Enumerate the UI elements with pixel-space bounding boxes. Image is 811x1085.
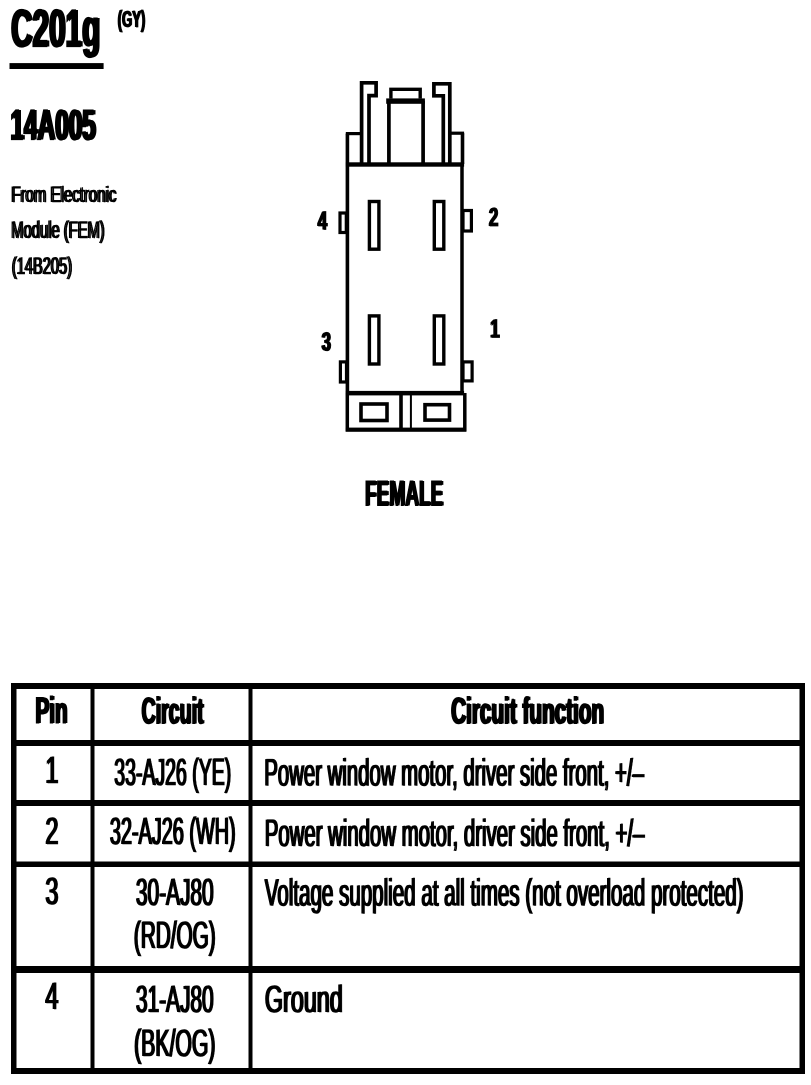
svg-text:Ground: Ground (266, 977, 344, 1020)
svg-text:31-AJ80: 31-AJ80 (136, 979, 214, 1021)
svg-text:Circuit function: Circuit function (450, 691, 603, 732)
svg-text:14A005: 14A005 (10, 101, 95, 149)
svg-text:4: 4 (318, 206, 328, 236)
svg-text:Power window motor, driver sid: Power window motor, driver side front, +… (265, 752, 645, 794)
svg-text:33-AJ26 (YE): 33-AJ26 (YE) (115, 752, 232, 794)
svg-text:1: 1 (46, 748, 59, 791)
svg-text:FEMALE: FEMALE (365, 473, 443, 513)
svg-text:C201g: C201g (10, 0, 99, 59)
svg-text:4: 4 (46, 974, 59, 1017)
svg-text:(14B205): (14B205) (13, 253, 73, 280)
svg-text:2: 2 (46, 809, 59, 852)
svg-text:2: 2 (489, 202, 498, 232)
svg-text:3: 3 (46, 869, 59, 912)
svg-text:Power window motor, driver sid: Power window motor, driver side front, +… (265, 812, 645, 854)
svg-text:(BK/OG): (BK/OG) (135, 1021, 216, 1064)
svg-text:Pin: Pin (35, 691, 67, 732)
svg-text:From Electronic: From Electronic (12, 183, 117, 208)
svg-text:3: 3 (322, 327, 331, 357)
svg-text:1: 1 (491, 314, 500, 344)
svg-text:32-AJ26 (WH): 32-AJ26 (WH) (110, 811, 236, 852)
svg-text:30-AJ80: 30-AJ80 (136, 872, 214, 914)
svg-text:(GY): (GY) (118, 6, 146, 32)
svg-text:Voltage supplied at all times: Voltage supplied at all times (not overl… (265, 872, 744, 914)
svg-text:Module (FEM): Module (FEM) (12, 218, 105, 245)
svg-text:Circuit: Circuit (141, 691, 203, 732)
svg-text:(RD/OG): (RD/OG) (134, 915, 216, 957)
